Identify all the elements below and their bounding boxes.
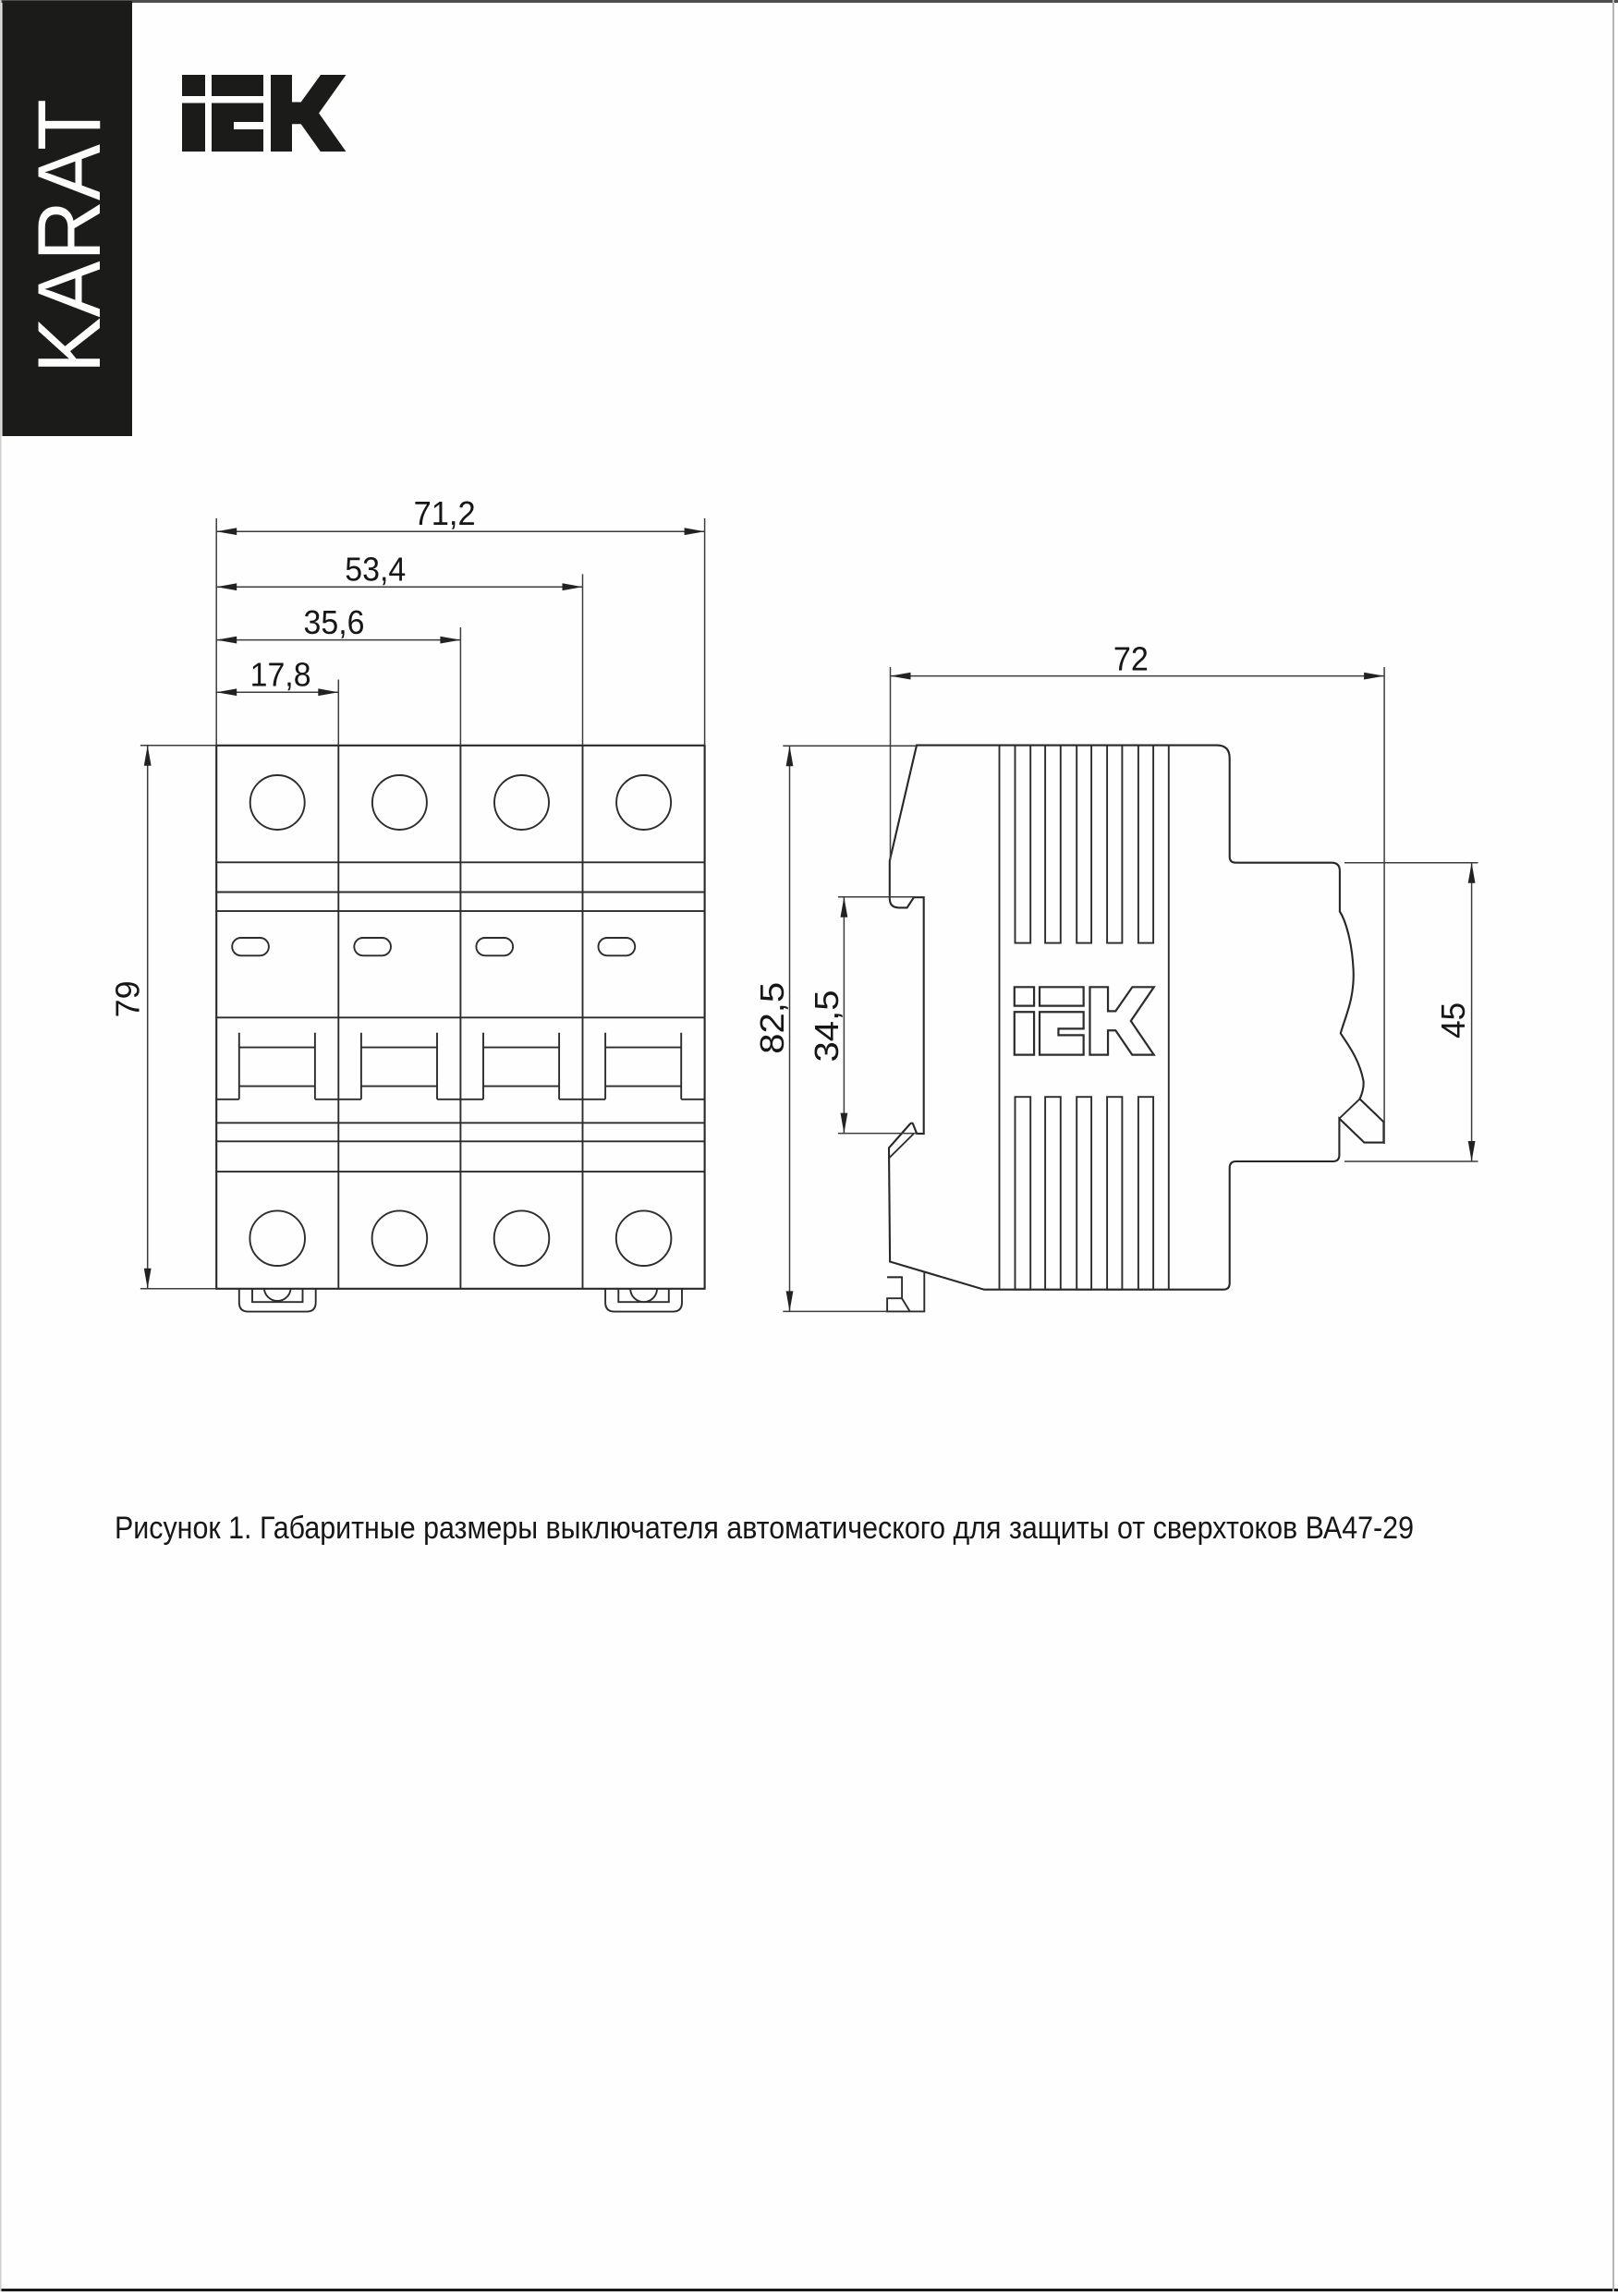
svg-text:Рисунок 1. Габаритные размеры: Рисунок 1. Габаритные размеры выключател… bbox=[115, 1511, 1414, 1546]
svg-text:71,2: 71,2 bbox=[414, 494, 476, 532]
svg-text:45: 45 bbox=[1434, 1002, 1472, 1039]
svg-text:KARAT: KARAT bbox=[20, 99, 119, 373]
svg-text:34,5: 34,5 bbox=[808, 990, 845, 1063]
svg-text:53,4: 53,4 bbox=[345, 551, 406, 589]
svg-text:82,5: 82,5 bbox=[753, 982, 791, 1054]
svg-text:35,6: 35,6 bbox=[304, 603, 365, 641]
svg-text:79: 79 bbox=[109, 980, 147, 1017]
svg-text:17,8: 17,8 bbox=[250, 656, 311, 694]
svg-text:72: 72 bbox=[1113, 639, 1149, 677]
